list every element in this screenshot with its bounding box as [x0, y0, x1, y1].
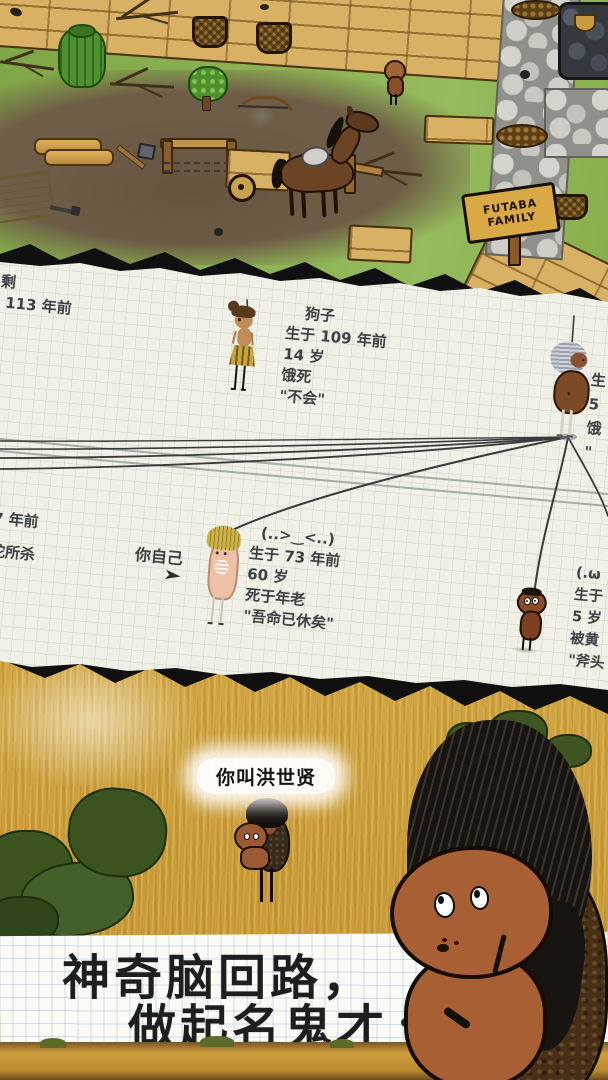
- relative-info-child-partial: (.ω 生于 5 岁 被黄 "斧头: [567, 562, 608, 675]
- fence-section[interactable]: [160, 136, 236, 182]
- fence-post: [162, 140, 173, 174]
- sign-board: FUTABA FAMILY: [461, 182, 561, 245]
- baby-head: [390, 846, 553, 979]
- you-character[interactable]: [193, 526, 246, 637]
- you-leg: [211, 593, 216, 623]
- you-label: 你自己: [134, 544, 184, 569]
- relative-info-gouzi: 狗子 生于 109 年前 14 岁 饿死 "不会": [278, 302, 389, 416]
- mother-leg: [260, 868, 263, 902]
- fence-wire: [164, 162, 234, 164]
- mother-with-baby-character[interactable]: [232, 796, 292, 908]
- name-popup-text: 你叫洪世贤: [216, 763, 316, 790]
- well-bucket[interactable]: [574, 14, 596, 32]
- elder-eye: [582, 359, 584, 361]
- relative-info-you: (..>‿<..) 生于 73 年前 60 岁 死于年老 "吾命已休矣": [242, 522, 342, 635]
- you-straw-hair: [206, 525, 242, 552]
- villager-leg: [390, 94, 392, 105]
- stone-pebble[interactable]: [260, 4, 269, 10]
- mother-leg: [270, 868, 273, 902]
- baby-nostril: [454, 941, 459, 945]
- villager-character[interactable]: [382, 60, 406, 106]
- elder-body: [552, 369, 592, 416]
- girl-grass-skirt: [229, 345, 257, 367]
- closeup-mother-with-baby[interactable]: [392, 726, 608, 1080]
- child-pupil: [534, 600, 536, 602]
- baby-body: [240, 846, 270, 870]
- cart-wheel: [228, 174, 256, 202]
- basket[interactable]: [192, 16, 228, 48]
- villager-leg: [395, 94, 397, 105]
- berry-bush[interactable]: [188, 66, 226, 112]
- girl-leg: [234, 365, 238, 389]
- baby-pupil: [438, 896, 444, 904]
- girl-foot: [231, 388, 236, 390]
- grass-tuft: [40, 1038, 66, 1048]
- arrow-right-icon: ➤: [162, 565, 183, 585]
- name-popup: 你叫洪世贤: [196, 758, 336, 794]
- berry-bush-trunk: [202, 96, 211, 111]
- log-pile[interactable]: [34, 138, 114, 168]
- girl-foot: [241, 389, 246, 391]
- girl-arm: [251, 332, 254, 345]
- stone-pebble[interactable]: [520, 70, 530, 79]
- horse[interactable]: [269, 107, 387, 233]
- baby-eye: [468, 885, 490, 911]
- elder-face: [570, 352, 588, 368]
- gray-haired-elder-character[interactable]: [539, 340, 596, 446]
- smoke-puff: [247, 105, 276, 128]
- cactus-top: [68, 24, 96, 38]
- elder-foot: [557, 434, 563, 437]
- axe-icon[interactable]: [137, 143, 156, 161]
- game-screenshot: FUTABA FAMILY: [0, 0, 608, 1080]
- open-book[interactable]: [0, 170, 55, 224]
- basket[interactable]: [256, 22, 292, 54]
- you-beard: [214, 559, 229, 574]
- you-foot: [218, 623, 223, 625]
- baby-eye: [253, 833, 259, 840]
- child-pupil: [526, 600, 528, 602]
- relative-info-mid-left: 7 年前 蛇所杀: [0, 508, 39, 566]
- baby-eye: [244, 833, 250, 840]
- stone-pebble[interactable]: [214, 228, 223, 236]
- relative-info-top-left: 剩 于 113 年前 岁 死: [0, 270, 74, 362]
- girl-leg: [242, 366, 246, 390]
- girl-body: [237, 327, 253, 347]
- plank-bench[interactable]: [424, 115, 495, 145]
- baby-eye: [432, 891, 456, 920]
- baby-nostril: [442, 938, 447, 942]
- family-tree-layer: 剩 于 113 年前 岁 死 狗子 生于 109 年前 14 岁 饿死 "不会"…: [0, 240, 608, 720]
- girl-with-bun-character[interactable]: [217, 306, 266, 409]
- child-character[interactable]: [508, 588, 547, 655]
- grass-tuft: [200, 1036, 234, 1047]
- fence-wire: [164, 170, 234, 172]
- food-plate[interactable]: [511, 0, 561, 20]
- you-foot: [207, 622, 212, 624]
- dust-scuff: [510, 646, 538, 654]
- girl-arm: [232, 331, 237, 344]
- grass-tuft: [330, 1039, 354, 1048]
- elder-leg: [560, 409, 565, 435]
- child-hair: [521, 587, 542, 597]
- baby-body-spot: [437, 944, 449, 952]
- baby-pupil: [474, 890, 480, 898]
- food-plate[interactable]: [496, 124, 548, 148]
- stone-road-branch[interactable]: [544, 88, 608, 158]
- log: [44, 149, 114, 166]
- elder-foot: [567, 435, 573, 438]
